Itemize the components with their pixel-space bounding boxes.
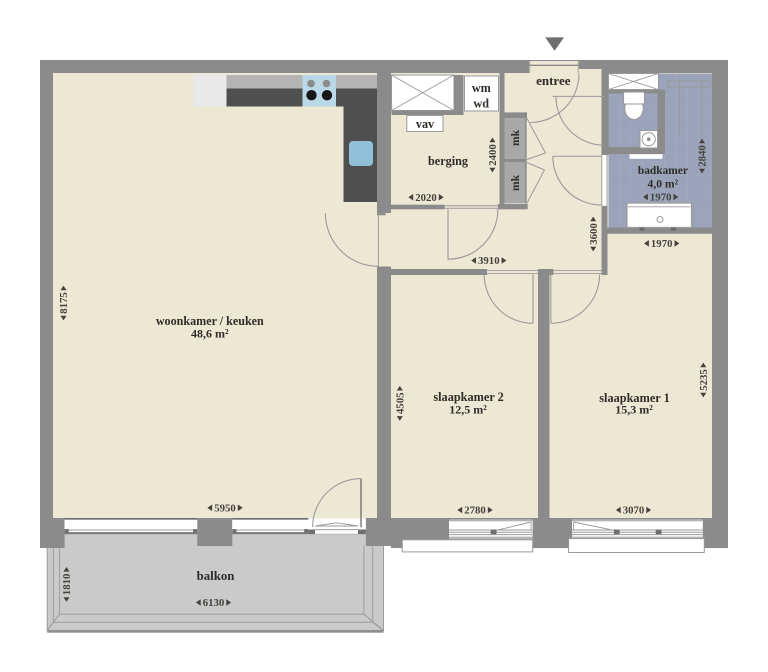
svg-text:2400: 2400	[487, 144, 499, 166]
svg-text:6130: 6130	[203, 597, 225, 609]
svg-text:2780: 2780	[464, 505, 486, 517]
svg-text:mk: mk	[510, 174, 522, 191]
svg-text:3910: 3910	[478, 255, 500, 267]
svg-text:15,3 m²: 15,3 m²	[615, 403, 653, 417]
svg-text:wm: wm	[472, 81, 491, 95]
svg-text:4,0 m²: 4,0 m²	[648, 178, 679, 191]
svg-text:2020: 2020	[415, 192, 437, 204]
svg-text:entree: entree	[536, 73, 571, 88]
svg-text:balkon: balkon	[197, 569, 235, 583]
svg-text:5950: 5950	[214, 503, 236, 515]
svg-text:8175: 8175	[58, 292, 70, 314]
svg-text:1810: 1810	[61, 574, 73, 596]
svg-text:1970: 1970	[651, 238, 673, 250]
svg-text:badkamer: badkamer	[638, 165, 688, 177]
svg-text:4505: 4505	[395, 393, 407, 415]
svg-text:mk: mk	[510, 129, 522, 146]
svg-text:3600: 3600	[588, 223, 600, 245]
svg-text:vav: vav	[416, 117, 435, 131]
svg-text:48,6 m²: 48,6 m²	[191, 327, 229, 341]
svg-text:5235: 5235	[698, 369, 710, 391]
svg-text:wd: wd	[474, 96, 490, 110]
svg-text:berging: berging	[428, 154, 468, 168]
svg-text:1970: 1970	[650, 192, 672, 204]
svg-text:3070: 3070	[623, 505, 645, 517]
svg-text:2840: 2840	[697, 145, 709, 167]
svg-text:12,5 m²: 12,5 m²	[449, 403, 487, 417]
